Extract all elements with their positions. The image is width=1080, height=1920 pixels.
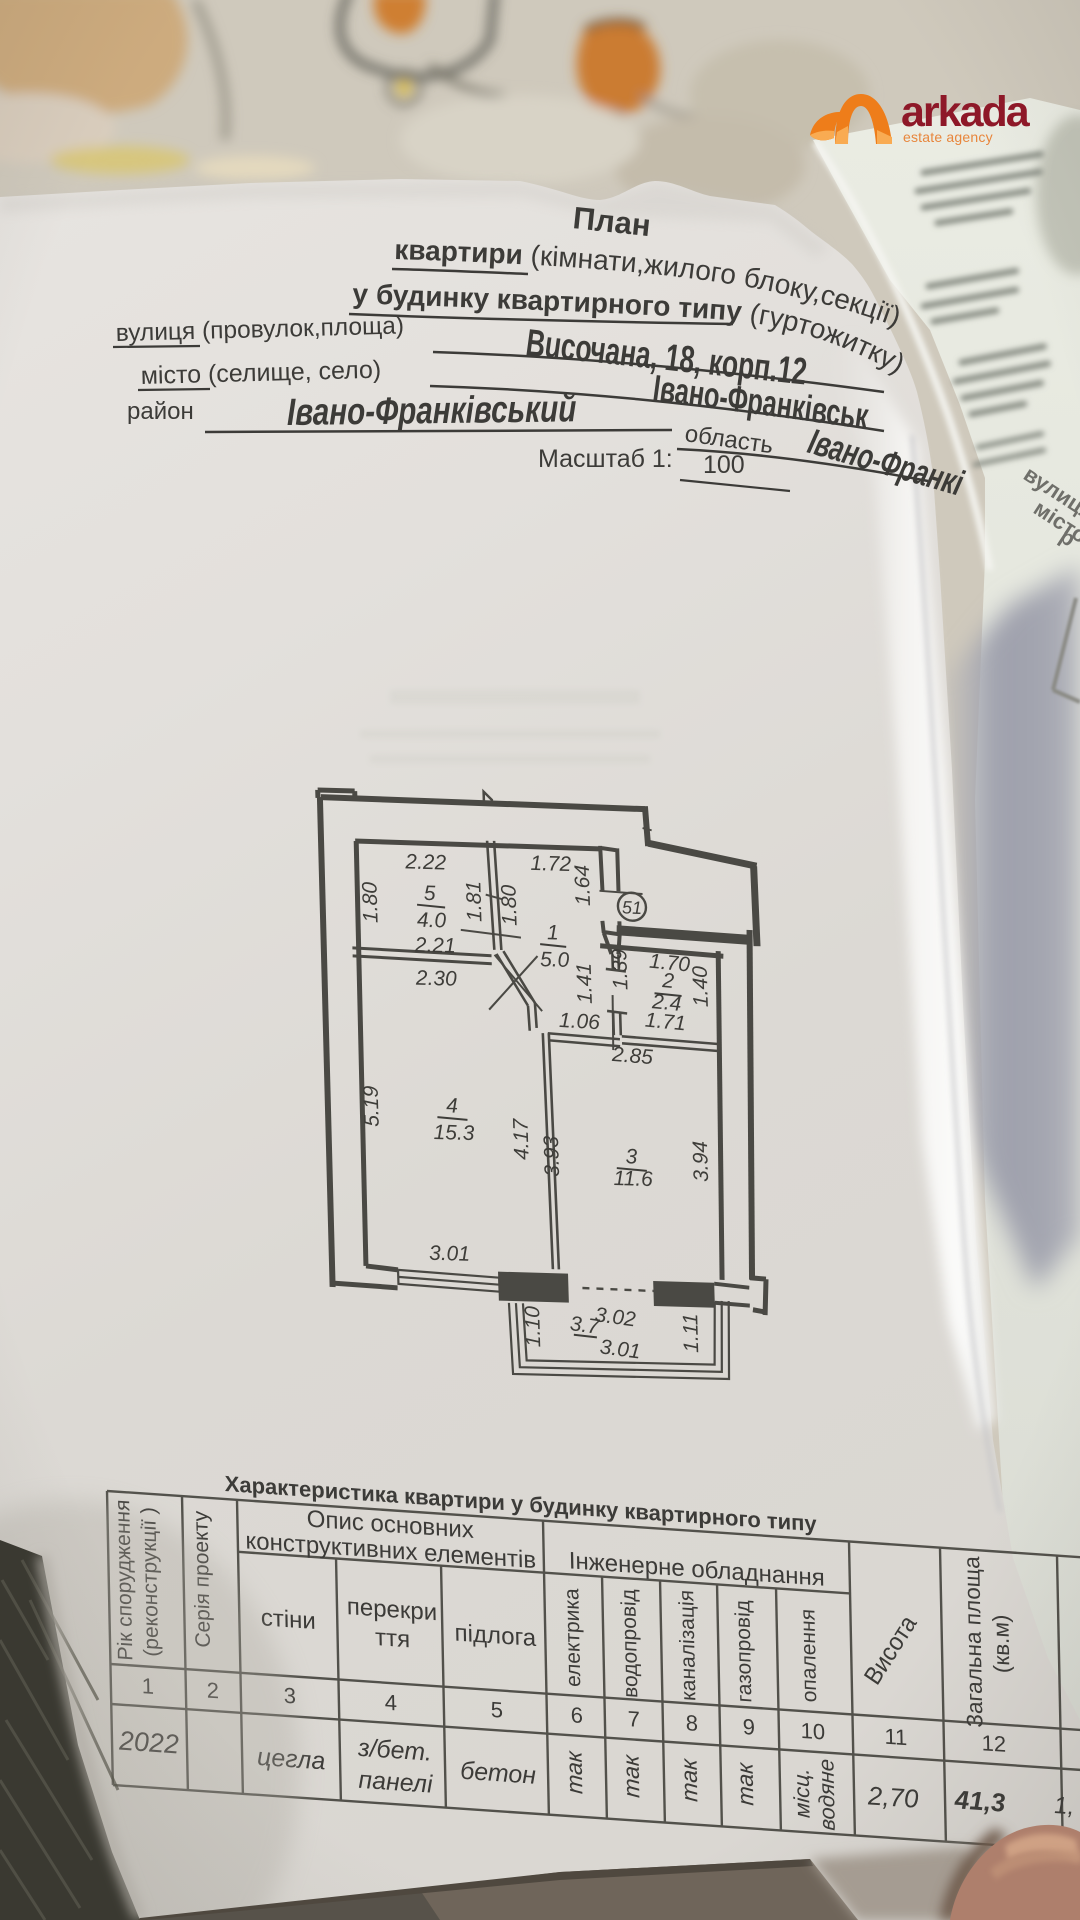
svg-text:estate agency: estate agency	[903, 129, 993, 145]
